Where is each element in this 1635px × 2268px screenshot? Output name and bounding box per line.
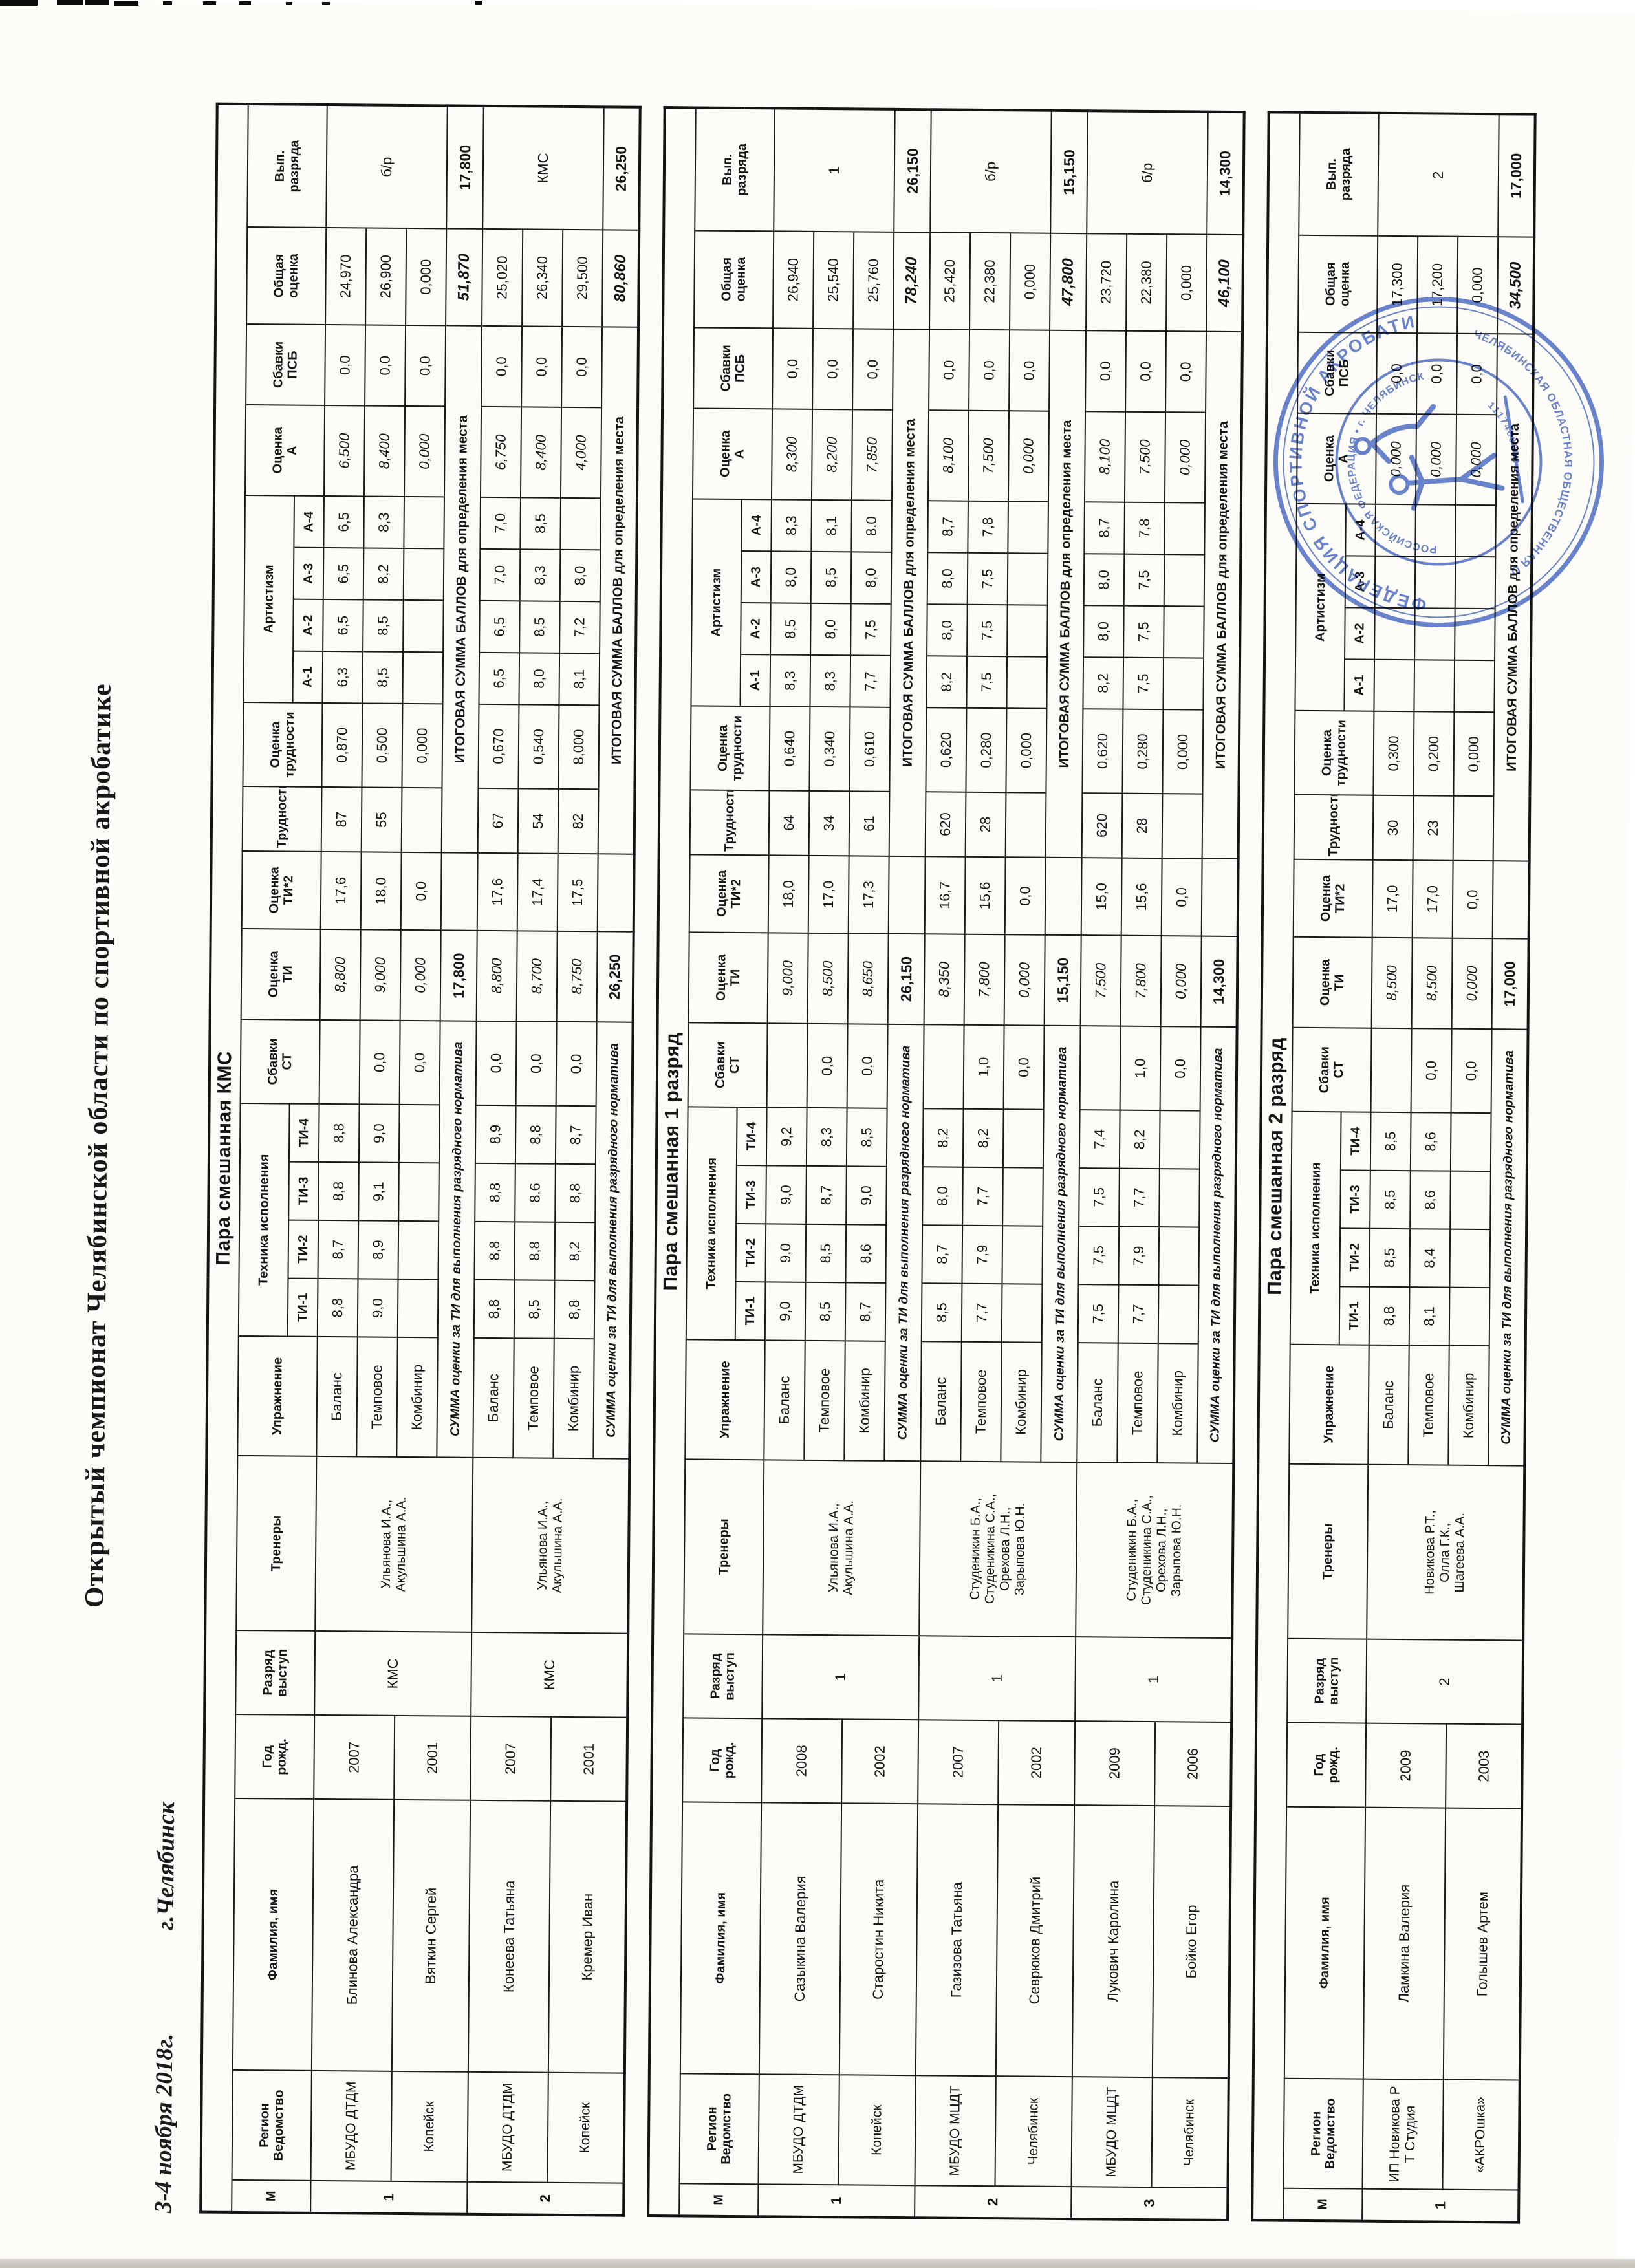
difficulty-score: 0,870 xyxy=(321,703,362,787)
artistry-score-4 xyxy=(1375,504,1416,556)
artistry-score-3 xyxy=(1008,553,1048,605)
exercise-name: Баланс xyxy=(473,1338,514,1458)
exercise-name: Баланс xyxy=(316,1337,357,1456)
st-deduction xyxy=(1080,1026,1121,1110)
scan-artifact xyxy=(163,1,172,5)
row-total: 26,340 xyxy=(522,229,563,326)
col-header-total: Общая оценка xyxy=(246,227,326,325)
col-header-year: Год рожд. xyxy=(1286,1723,1366,1808)
st-deduction: 0,0 xyxy=(516,1021,557,1105)
ti-score-3: 9,0 xyxy=(846,1166,887,1224)
scan-artifact xyxy=(203,1,216,5)
sum-total-label: ИТОГОВАЯ СУММА БАЛЛОВ для определения ме… xyxy=(1202,332,1242,859)
artistry-score-3 xyxy=(1375,556,1416,608)
ti-score-4: 8,5 xyxy=(1370,1112,1411,1171)
artistry-score-1: 8,3 xyxy=(810,655,850,707)
row-total: 23,720 xyxy=(1086,233,1127,330)
difficulty-score: 0,280 xyxy=(966,708,1006,792)
athlete-name: Голышев Артем xyxy=(1444,1808,1522,2080)
row-total: 0,000 xyxy=(1010,233,1050,330)
ti-score-2: 8,9 xyxy=(358,1220,398,1279)
ti-score-1: 7,5 xyxy=(1078,1284,1119,1343)
col-header-tech: Техника исполнения xyxy=(239,1103,290,1337)
athlete-name: Старостин Никита xyxy=(839,1803,918,2075)
artistry-score-1 xyxy=(1006,656,1047,708)
difficulty-value: 30 xyxy=(1373,795,1414,860)
col-header-a-2: А-2 xyxy=(741,603,771,654)
artistry-score-1 xyxy=(1414,660,1455,711)
city-cell: «АКРОшка» xyxy=(1442,2080,1519,2190)
col-header-difficulty-score: Оценка трудности xyxy=(243,702,322,787)
col-header-exercise: Упражнение xyxy=(1289,1345,1369,1465)
ti-score-4 xyxy=(1451,1113,1491,1171)
col-header-difficulty-score: Оценка трудности xyxy=(690,706,770,790)
psb-deduction: 0,0 xyxy=(405,325,446,406)
artistry-score-1: 7,5 xyxy=(966,656,1007,708)
ti-score-1: 8,5 xyxy=(805,1282,846,1341)
exercise-name: Комбинир xyxy=(1157,1343,1198,1463)
artistry-score-3: 7,0 xyxy=(480,549,521,601)
ti-total: 8,700 xyxy=(517,931,558,1021)
score-table-2: Пара смешанная 1 разрядМРегион Ведомство… xyxy=(647,106,1246,2221)
artistry-total: 0,000 xyxy=(1376,414,1416,504)
col-header-year: Год рожд. xyxy=(682,1718,762,1802)
artistry-score-2: 7,5 xyxy=(1123,606,1164,658)
ti-score-1: 9,0 xyxy=(765,1282,806,1340)
artistry-score-1: 8,5 xyxy=(362,651,403,703)
col-header-trainers: Тренеры xyxy=(1288,1464,1368,1639)
ti-score-4: 8,6 xyxy=(1411,1112,1451,1171)
ti-score-4: 8,2 xyxy=(923,1108,964,1167)
score-table-1: Пара смешанная КМСМРегион ВедомствоФамил… xyxy=(199,103,642,2217)
scan-artifact xyxy=(114,1,138,6)
st-deduction xyxy=(1371,1028,1412,1112)
difficulty-score: 0,000 xyxy=(402,704,442,788)
sum-total-label: ИТОГОВАЯ СУММА БАЛЛОВ для определения ме… xyxy=(889,329,929,856)
row-total: 17,300 xyxy=(1377,236,1418,333)
col-header-a-1: А-1 xyxy=(292,651,323,703)
ti-total: 8,500 xyxy=(808,933,849,1024)
birth-year: 2001 xyxy=(550,1717,627,1802)
ti-score-1 xyxy=(1158,1285,1199,1343)
ti-score-2: 8,6 xyxy=(845,1224,886,1282)
artistry-score-1: 7,7 xyxy=(850,655,891,707)
col-header-artistry: Артистизм xyxy=(691,499,742,706)
ti-score-1: 8,1 xyxy=(1409,1287,1450,1345)
difficulty-value: 54 xyxy=(518,788,559,853)
col-header-ti2: Оценка ТИ*2 xyxy=(1294,859,1373,938)
col-header-ti-3: ТИ-3 xyxy=(1340,1170,1370,1228)
ti2-score: 17,4 xyxy=(517,853,558,931)
st-deduction: 0,0 xyxy=(807,1024,848,1108)
ti-score-4: 7,4 xyxy=(1079,1110,1120,1168)
col-header-ti-1: ТИ-1 xyxy=(1339,1286,1370,1345)
difficulty-value: 28 xyxy=(1122,794,1163,858)
col-header-ti2: Оценка ТИ*2 xyxy=(242,851,321,929)
artistry-score-4: 7,8 xyxy=(968,501,1008,553)
ti-total: 7,500 xyxy=(1081,935,1121,1026)
col-header-a-2: А-2 xyxy=(293,599,323,651)
difficulty-score: 0,610 xyxy=(849,707,890,791)
pair-number: 1 xyxy=(1362,2189,1519,2223)
ti-score-2 xyxy=(1449,1229,1490,1288)
sum-total-value: 51,870 xyxy=(446,228,482,325)
ti-score-3: 9,0 xyxy=(766,1165,807,1224)
artistry-score-1: 8,2 xyxy=(926,656,967,707)
ti2-score: 0,0 xyxy=(1005,857,1046,934)
scanned-scoresheet-page: Открытый чемпионат Челябинской области п… xyxy=(0,0,1635,2268)
col-header-st: Сбавки СТ xyxy=(241,1019,320,1104)
department-cell: ИП Новикова Р Т Студия xyxy=(1362,2079,1443,2190)
artistry-score-3 xyxy=(1415,556,1456,608)
col-header-oti: Оценка ТИ xyxy=(689,932,768,1023)
ti-score-4: 8,7 xyxy=(556,1106,596,1164)
rotated-sheet: Открытый чемпионат Челябинской области п… xyxy=(0,0,1635,2268)
vyp-grade-cell: КМС xyxy=(482,106,603,230)
artistry-score-1: 8,3 xyxy=(770,654,810,706)
col-header-num: М xyxy=(232,2180,310,2213)
athlete-name: Ламкина Валерия xyxy=(1363,1808,1446,2080)
ti-score-2: 8,4 xyxy=(1409,1229,1450,1287)
difficulty-value: 34 xyxy=(809,791,850,856)
col-header-vyp: Вып. разряда xyxy=(247,104,327,228)
ti-total: 0,000 xyxy=(400,930,441,1021)
row-total: 25,760 xyxy=(853,232,894,329)
ti-total: 8,800 xyxy=(477,931,517,1021)
grade-cell: КМС xyxy=(314,1631,471,1716)
row-total: 25,540 xyxy=(813,232,854,329)
ti-score-1: 7,7 xyxy=(962,1284,1002,1342)
artistry-score-3: 6,5 xyxy=(323,548,364,599)
ti-score-2 xyxy=(1002,1226,1043,1284)
athlete-name: Сазыкина Валерия xyxy=(759,1802,841,2075)
exercise-name: Темповое xyxy=(1408,1345,1449,1465)
ti-total: 9,000 xyxy=(360,929,401,1020)
ti-score-1: 7,7 xyxy=(1118,1285,1159,1343)
grade-cell: 1 xyxy=(762,1634,919,1720)
vyp-grade-cell: б/р xyxy=(930,109,1051,233)
competition-date: 3-4 ноября 2018г. xyxy=(149,2034,179,2214)
ti-total: 7,800 xyxy=(964,934,1005,1025)
sum-spacer xyxy=(1493,861,1530,938)
col-header-grade: Разряд выступ xyxy=(235,1630,315,1715)
ti-score-4: 8,2 xyxy=(963,1109,1004,1167)
difficulty-score: 0,200 xyxy=(1413,711,1454,795)
grade-cell: 1 xyxy=(918,1636,1076,1721)
scan-edge-shadow xyxy=(0,2259,1635,2268)
ti-score-1 xyxy=(398,1279,439,1337)
col-header-vyp: Вып. разряда xyxy=(695,107,774,231)
ti-score-1: 8,8 xyxy=(1369,1287,1410,1345)
artistry-score-4 xyxy=(404,497,444,548)
psb-deduction: 0,0 xyxy=(481,326,522,407)
st-deduction xyxy=(319,1020,360,1104)
ti-total: 0,000 xyxy=(1161,936,1202,1026)
pair-number: 1 xyxy=(758,2184,915,2218)
col-header-difficulty: Трудность xyxy=(243,786,322,852)
col-header-grade: Разряд выступ xyxy=(683,1634,763,1718)
artistry-score-3: 8,0 xyxy=(851,552,892,603)
department-cell: МБУДО ДТДМ xyxy=(468,2072,548,2183)
ti-score-3: 8,8 xyxy=(555,1164,596,1222)
artistry-score-1 xyxy=(1163,658,1204,709)
city-cell: Копейск xyxy=(391,2071,468,2182)
col-header-name: Фамилия, имя xyxy=(233,1798,314,2071)
col-header-oti: Оценка ТИ xyxy=(241,929,321,1020)
col-header-exercise: Упражнение xyxy=(685,1339,764,1460)
col-header-ti-3: ТИ-3 xyxy=(736,1165,766,1224)
ti-total: 8,500 xyxy=(1412,938,1453,1028)
page-title: Открытый чемпионат Челябинской области п… xyxy=(74,78,122,2212)
artistry-total: 0,000 xyxy=(1456,415,1497,505)
artistry-total: 8,100 xyxy=(928,410,969,501)
col-header-a-3: А-3 xyxy=(294,548,324,599)
scan-artifact xyxy=(0,0,38,6)
artistry-total: 6,750 xyxy=(481,407,521,497)
st-deduction xyxy=(767,1023,808,1107)
difficulty-score: 8,000 xyxy=(558,705,599,789)
ti-score-4: 8,5 xyxy=(847,1108,887,1166)
vyp-grade-cell: 1 xyxy=(774,108,894,232)
col-header-region: Регион Ведомство xyxy=(680,2073,759,2184)
artistry-score-4 xyxy=(1164,502,1205,554)
difficulty-score: 0,280 xyxy=(1122,709,1163,794)
psb-deduction: 0,0 xyxy=(1416,333,1457,414)
artistry-total: 0,000 xyxy=(1165,412,1206,502)
col-header-a-2: А-2 xyxy=(1345,607,1375,659)
scan-artifact xyxy=(286,2,292,5)
ti-score-2: 9,0 xyxy=(765,1224,806,1282)
birth-year: 2007 xyxy=(470,1716,551,1801)
col-header-ti-3: ТИ-3 xyxy=(288,1162,319,1220)
exercise-name: Темповое xyxy=(356,1337,397,1456)
col-header-num: М xyxy=(1283,2188,1362,2221)
psb-deduction: 0,0 xyxy=(1009,330,1050,411)
row-total: 22,380 xyxy=(969,233,1010,330)
ti2-score: 15,6 xyxy=(1121,858,1162,936)
artistry-score-3: 8,2 xyxy=(363,548,404,599)
st-deduction: 0,0 xyxy=(847,1024,888,1108)
artistry-score-2 xyxy=(1164,606,1204,658)
ti-score-3: 8,0 xyxy=(922,1167,963,1225)
difficulty-value: 620 xyxy=(926,792,966,856)
artistry-score-2: 8,5 xyxy=(519,601,560,653)
ti-score-3: 7,5 xyxy=(1079,1168,1120,1226)
ti-score-3 xyxy=(1159,1169,1200,1227)
row-total: 0,000 xyxy=(406,228,446,325)
sum-ti-label: СУММА оценки за ТИ для выполнения разряд… xyxy=(1488,1029,1528,1465)
col-header-a-4: А-4 xyxy=(294,496,324,548)
col-header-ti-2: ТИ-2 xyxy=(735,1224,766,1282)
ti2-score: 0,0 xyxy=(401,852,442,930)
col-header-grade: Разряд выступ xyxy=(1287,1639,1367,1723)
psb-deduction: 0,0 xyxy=(812,329,853,409)
row-total: 26,940 xyxy=(773,231,814,328)
artistry-score-1 xyxy=(1374,660,1414,711)
difficulty-score: 0,340 xyxy=(809,707,850,791)
col-header-ti-4: ТИ-4 xyxy=(289,1104,319,1162)
artistry-score-3: 8,5 xyxy=(811,552,852,603)
col-header-a-4: А-4 xyxy=(1345,504,1376,556)
ti2-score: 15,0 xyxy=(1081,858,1122,935)
ti2-score: 17,6 xyxy=(321,852,362,929)
ti-score-1: 8,7 xyxy=(845,1282,886,1341)
row-total: 29,500 xyxy=(562,230,603,327)
artistry-score-1: 8,1 xyxy=(559,653,600,705)
st-deduction: 1,0 xyxy=(964,1025,1004,1109)
tables-host: Пара смешанная КМСМРегион ВедомствоФамил… xyxy=(199,80,1537,2224)
sum-spacer xyxy=(441,852,478,930)
row-total: 24,970 xyxy=(325,228,366,325)
artistry-score-1 xyxy=(1454,660,1495,712)
difficulty-score: 0,000 xyxy=(1006,708,1046,792)
artistry-score-2 xyxy=(403,600,444,652)
difficulty-score: 0,620 xyxy=(1082,709,1123,793)
sum-ti-label: СУММА оценки за ТИ для выполнения разряд… xyxy=(593,1022,633,1458)
birth-year: 2008 xyxy=(761,1718,842,1803)
exercise-name: Комбинир xyxy=(844,1341,885,1460)
col-header-ti-4: ТИ-4 xyxy=(737,1107,767,1165)
psb-deduction: 0,0 xyxy=(1125,331,1166,412)
sum-total-value: 34,500 xyxy=(1497,237,1534,334)
grade-cell: 2 xyxy=(1366,1639,1523,1725)
artistry-score-4: 6,5 xyxy=(323,496,364,548)
city-cell: Копейск xyxy=(839,2075,916,2185)
psb-deduction: 0,0 xyxy=(1165,331,1206,412)
col-header-name: Фамилия, имя xyxy=(1284,1807,1365,2079)
artistry-total: 7,850 xyxy=(852,409,893,500)
ti-score-4: 9,2 xyxy=(766,1107,807,1165)
ti-score-1: 8,8 xyxy=(318,1279,358,1337)
artistry-score-3: 8,0 xyxy=(771,551,812,603)
athlete-name: Лукович Каролина xyxy=(1072,1805,1154,2077)
scan-artifact xyxy=(239,1,251,5)
col-header-vyp: Вып. разряда xyxy=(1299,113,1378,236)
sum-total-value: 47,800 xyxy=(1050,233,1087,330)
col-header-num: М xyxy=(679,2183,758,2216)
exercise-name: Комбинир xyxy=(1448,1346,1489,1465)
sum-ti-label: СУММА оценки за ТИ для выполнения разряд… xyxy=(1041,1026,1080,1462)
exercise-name: Темповое xyxy=(513,1338,554,1458)
col-header-a-1: А-1 xyxy=(1344,659,1374,711)
artistry-score-4 xyxy=(1008,501,1048,553)
ti-score-2: 8,7 xyxy=(922,1225,962,1283)
col-header-difficulty: Трудность xyxy=(690,790,770,855)
score-table-3: Пара смешанная 2 разрядМРегион Ведомство… xyxy=(1251,111,1537,2223)
sum-spacer xyxy=(598,854,634,931)
sum-ti-label: СУММА оценки за ТИ для выполнения разряд… xyxy=(884,1024,924,1461)
artistry-score-4: 8,0 xyxy=(851,500,892,552)
exercise-name: Комбинир xyxy=(553,1339,594,1458)
birth-year: 2003 xyxy=(1446,1724,1522,1809)
pair-number: 2 xyxy=(915,2185,1071,2219)
birth-year: 2007 xyxy=(918,1720,999,1804)
col-header-oa: Оценка А xyxy=(245,405,325,496)
ti-score-4: 9,0 xyxy=(359,1104,400,1162)
artistry-score-3 xyxy=(1164,554,1205,606)
sum-ti-value: 17,000 xyxy=(1492,938,1529,1029)
ti-score-2: 7,9 xyxy=(1118,1227,1159,1285)
ti-score-4 xyxy=(399,1105,440,1163)
col-header-trainers: Тренеры xyxy=(684,1459,764,1634)
athlete-name: Газизова Татьяна xyxy=(916,1804,998,2076)
city-cell: Челябинск xyxy=(995,2076,1072,2187)
exercise-name: Баланс xyxy=(920,1341,961,1461)
col-header-exercise: Упражнение xyxy=(237,1336,317,1456)
trainers-cell: Ульянова И.А., Акульшина А.А. xyxy=(763,1460,920,1636)
pair-number: 1 xyxy=(310,2181,467,2214)
athlete-name: Севрюков Дмитрий xyxy=(996,1804,1074,2077)
difficulty-value xyxy=(1162,794,1203,858)
artistry-score-2: 8,5 xyxy=(770,603,811,654)
sum-ti-label: СУММА оценки за ТИ для выполнения разряд… xyxy=(1197,1027,1237,1463)
scan-artifact xyxy=(475,1,482,5)
psb-deduction: 0,0 xyxy=(325,325,365,405)
col-header-st: Сбавки СТ xyxy=(688,1022,768,1107)
psb-deduction: 0,0 xyxy=(852,329,893,409)
sum-total-value: 80,860 xyxy=(602,230,639,327)
birth-year: 2009 xyxy=(1365,1723,1446,1808)
artistry-score-2: 7,2 xyxy=(559,601,600,653)
st-deduction: 0,0 xyxy=(360,1020,400,1104)
sheet-content: Открытый чемпионат Челябинской области п… xyxy=(0,78,1537,2224)
difficulty-value: 87 xyxy=(321,787,362,852)
ti-score-2: 7,5 xyxy=(1078,1226,1119,1284)
ti-score-4: 8,8 xyxy=(515,1105,556,1163)
artistry-total: 7,500 xyxy=(968,411,1009,501)
artistry-score-4: 8,3 xyxy=(771,499,812,551)
artistry-score-2: 8,0 xyxy=(927,604,968,656)
col-header-region: Регион Ведомство xyxy=(232,2070,312,2181)
ti-score-3 xyxy=(398,1163,439,1221)
col-header-ti-4: ТИ-4 xyxy=(1341,1112,1371,1170)
difficulty-score: 0,000 xyxy=(1453,712,1494,796)
artistry-total: 0,000 xyxy=(1008,411,1049,501)
artistry-score-4: 8,5 xyxy=(520,497,561,549)
artistry-total: 8,300 xyxy=(772,409,812,499)
artistry-score-2 xyxy=(1007,605,1048,656)
ti2-score: 18,0 xyxy=(361,852,402,929)
exercise-name: Темповое xyxy=(960,1342,1001,1462)
ti2-score: 17,0 xyxy=(1413,860,1453,938)
difficulty-value: 55 xyxy=(362,787,402,852)
artistry-score-4 xyxy=(1415,504,1456,556)
ti-score-1 xyxy=(1449,1288,1490,1346)
pair-number: 3 xyxy=(1071,2187,1228,2220)
ti-score-1: 8,8 xyxy=(474,1280,515,1338)
sum-total-label: ИТОГОВАЯ СУММА БАЛЛОВ для определения ме… xyxy=(1046,330,1086,858)
col-header-st: Сбавки СТ xyxy=(1292,1028,1372,1112)
col-header-a-4: А-4 xyxy=(741,499,772,551)
athlete-name: Конеева Татьяна xyxy=(468,1800,550,2073)
row-total: 0,000 xyxy=(1457,237,1498,334)
difficulty-score: 0,620 xyxy=(926,707,966,792)
col-header-ti-2: ТИ-2 xyxy=(1339,1228,1370,1286)
grade-cell: 1 xyxy=(1075,1637,1232,1722)
vyp-grade-cell: б/р xyxy=(1087,111,1207,235)
artistry-total: 8,100 xyxy=(1085,411,1125,502)
artistry-score-4: 7,0 xyxy=(480,497,521,549)
exercise-name: Баланс xyxy=(1368,1345,1409,1465)
artistry-score-3: 8,3 xyxy=(520,549,561,601)
exercise-name: Комбинир xyxy=(396,1337,437,1457)
ti-total: 0,000 xyxy=(1452,938,1493,1029)
psb-deduction: 0,0 xyxy=(772,328,813,409)
exercise-name: Темповое xyxy=(1117,1343,1158,1463)
st-deduction: 0,0 xyxy=(1160,1026,1201,1110)
ti-total: 8,800 xyxy=(320,929,361,1020)
col-header-year: Год рожд. xyxy=(235,1714,314,1799)
